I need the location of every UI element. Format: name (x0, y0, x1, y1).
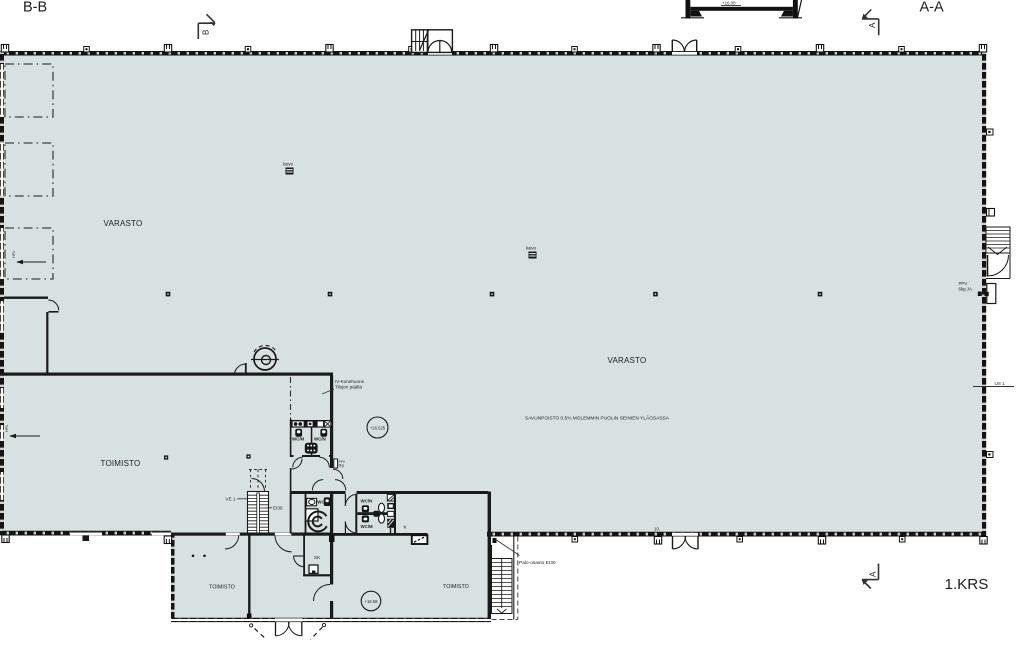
svg-text:10.: 10. (654, 527, 660, 532)
svg-text:B: B (202, 30, 211, 35)
svg-text:PPV: PPV (959, 281, 968, 286)
svg-text:HP1: HP1 (12, 251, 16, 258)
svg-text:WC/M: WC/M (361, 524, 374, 529)
svg-text:VARASTO: VARASTO (104, 219, 143, 228)
svg-text:HP1: HP1 (5, 425, 9, 432)
svg-text:A-A: A-A (920, 0, 945, 16)
svg-text:Palo-osasto EI30: Palo-osasto EI30 (519, 560, 556, 566)
svg-text:IV-Konehuone: IV-Konehuone (335, 379, 365, 384)
svg-text:1.KRS: 1.KRS (945, 576, 989, 593)
svg-text:+16.08: +16.08 (722, 0, 736, 5)
svg-text:TOIMISTO: TOIMISTO (443, 584, 469, 590)
svg-text:WC: WC (317, 500, 324, 505)
svg-text:kaivo: kaivo (526, 246, 537, 251)
svg-text:VARASTO: VARASTO (608, 356, 647, 365)
svg-text:EI30: EI30 (273, 505, 283, 510)
svg-text:WC/N: WC/N (361, 499, 373, 504)
svg-text:SAVUNPOISTO 0,5% MOLEMMIN PUOL: SAVUNPOISTO 0,5% MOLEMMIN PUOLIN SEINIEN… (525, 415, 670, 422)
svg-text:WC/N: WC/N (314, 437, 326, 442)
svg-text:SK: SK (314, 555, 321, 560)
svg-text:WC/M: WC/M (292, 437, 305, 442)
svg-text:TOIMISTO: TOIMISTO (209, 585, 235, 591)
svg-text:6kg JA: 6kg JA (959, 286, 972, 291)
svg-text:kaivo: kaivo (283, 162, 294, 167)
svg-text:6kg: 6kg (339, 463, 344, 467)
svg-text:Tilojen päällä: Tilojen päällä (335, 385, 362, 390)
svg-text:US 1: US 1 (995, 381, 1006, 386)
svg-text:TOIMISTO: TOIMISTO (101, 459, 141, 468)
svg-text:VE 1: VE 1 (226, 496, 236, 501)
svg-text:B-B: B-B (23, 0, 47, 16)
svg-text:+16.58: +16.58 (365, 599, 379, 604)
svg-text:+16.525: +16.525 (370, 425, 386, 430)
svg-text:A: A (868, 22, 877, 28)
svg-text:A: A (869, 571, 878, 577)
